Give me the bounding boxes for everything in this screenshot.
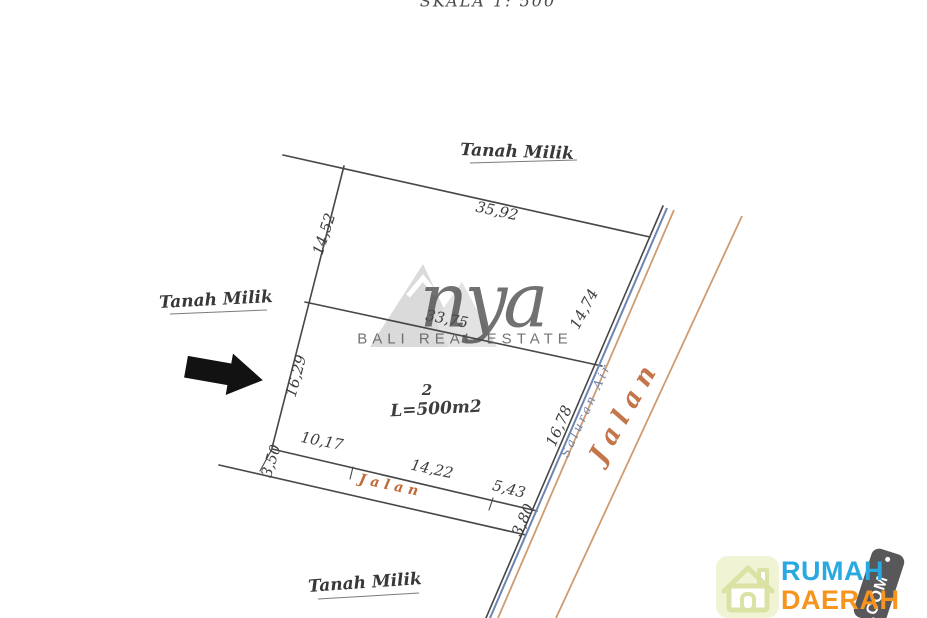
watermark-caption: BALI REAL ESTATE [357,331,573,348]
scale-note: SKALA 1: 500 [420,0,556,11]
segment-tick-1 [350,467,353,479]
top-boundary-line [283,155,650,237]
plot-number: 2 [422,381,432,399]
land-survey-sketch: .COM SKALA 1: 500 Tanah Milik Tanah Mili… [0,0,927,618]
logo-word-rumah: RUMAH [781,558,884,585]
boundary-label-top: Tanah Milik [460,140,574,164]
arrow-icon [182,346,266,401]
left-boundary-line [272,166,344,448]
logo-word-daerah: DAERAH [781,587,900,614]
